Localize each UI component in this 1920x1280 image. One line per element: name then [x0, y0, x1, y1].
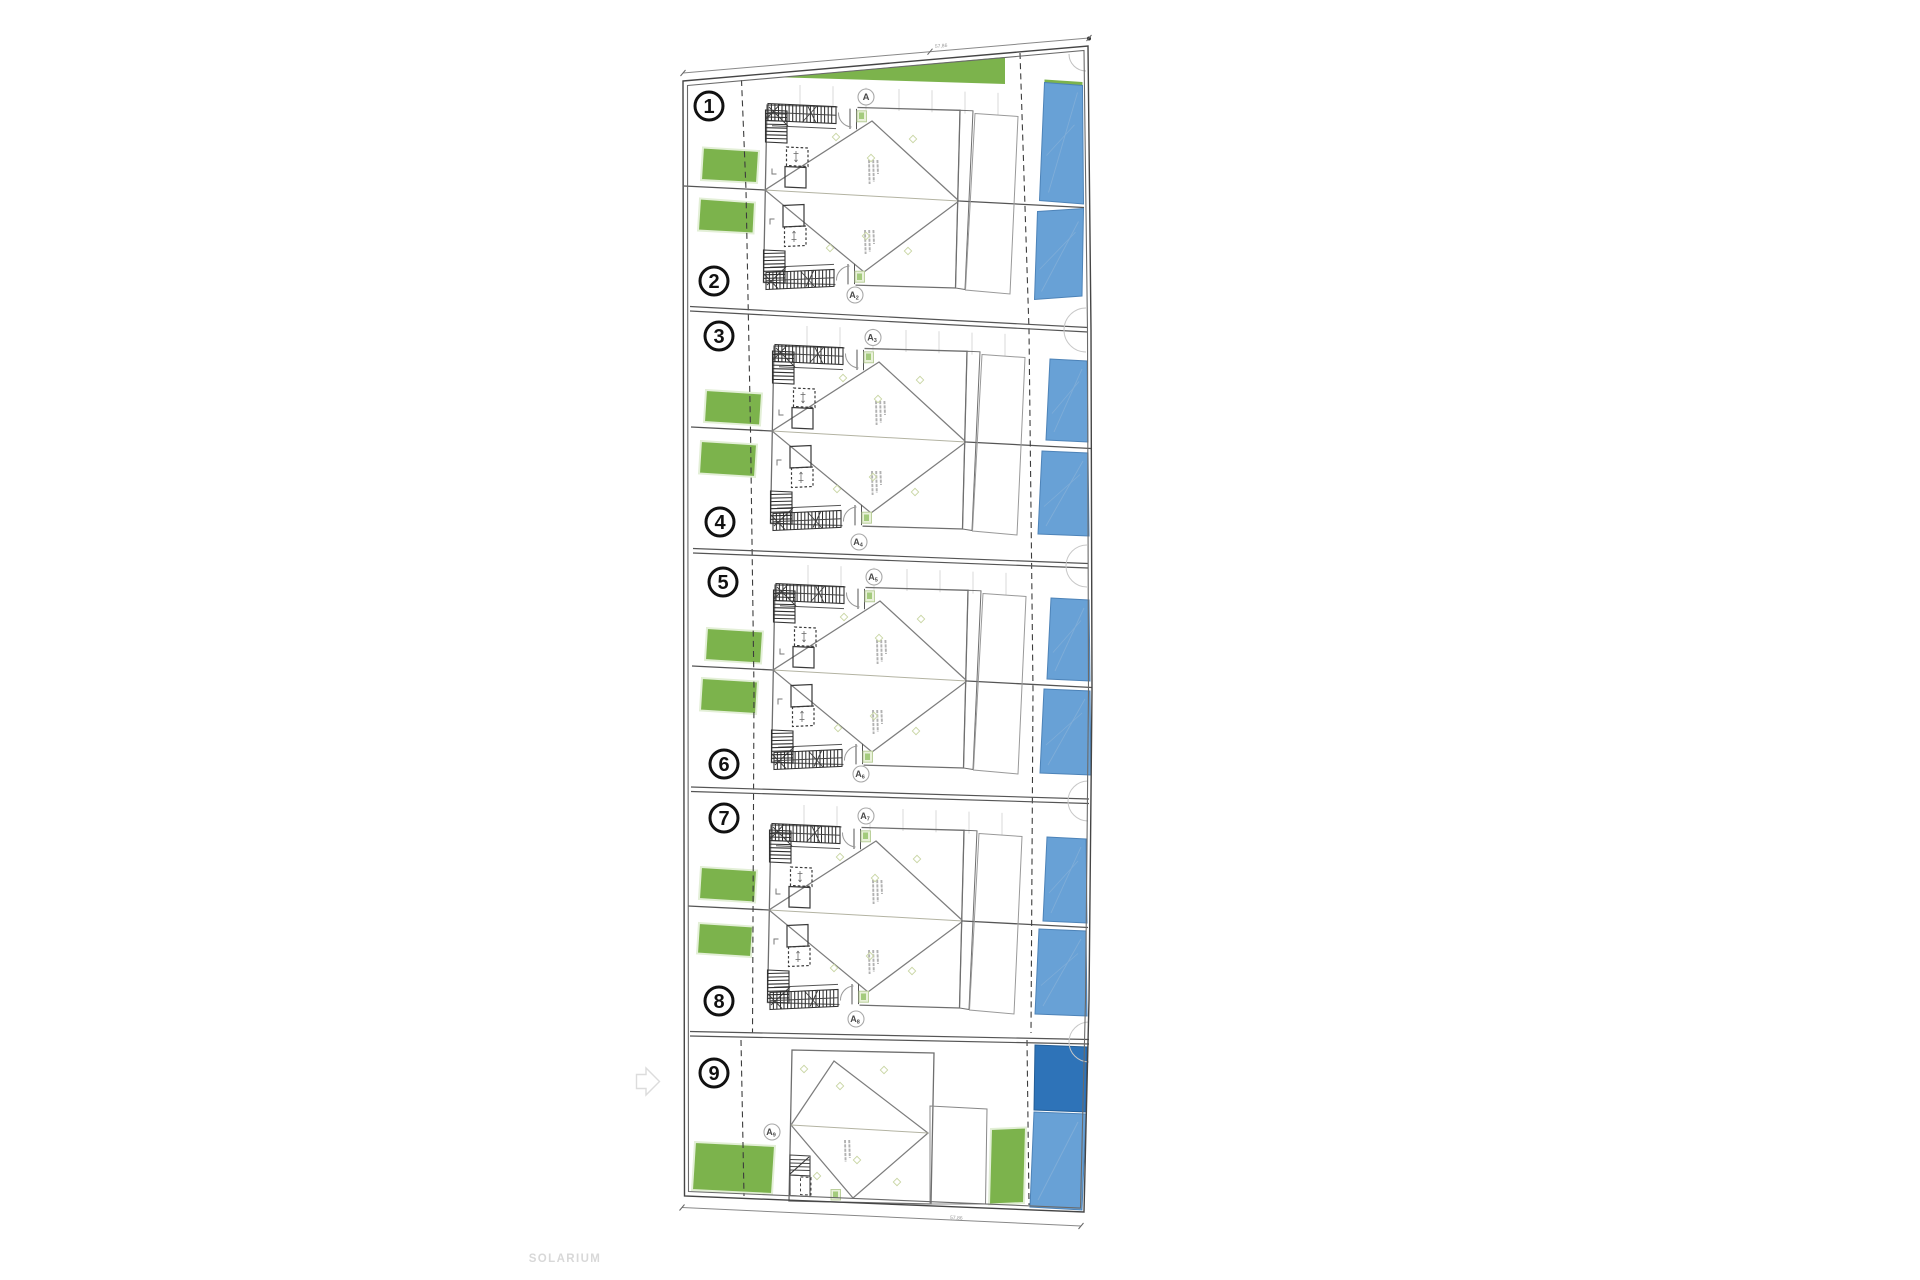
- svg-text:5: 5: [717, 572, 728, 594]
- svg-text:2: 2: [708, 271, 719, 293]
- svg-text:SOLARIUM: SOLARIUM: [529, 1253, 602, 1265]
- svg-text:6: 6: [718, 754, 729, 776]
- svg-text:8: 8: [713, 991, 724, 1013]
- svg-text:57,86: 57,86: [935, 43, 948, 50]
- svg-text:1: 1: [703, 96, 714, 118]
- svg-text:A: A: [863, 92, 870, 103]
- svg-text:4: 4: [714, 512, 726, 534]
- svg-text:7: 7: [718, 808, 729, 830]
- svg-text:3: 3: [713, 326, 724, 348]
- svg-text:57,86: 57,86: [950, 1215, 963, 1222]
- svg-text:9: 9: [708, 1063, 719, 1085]
